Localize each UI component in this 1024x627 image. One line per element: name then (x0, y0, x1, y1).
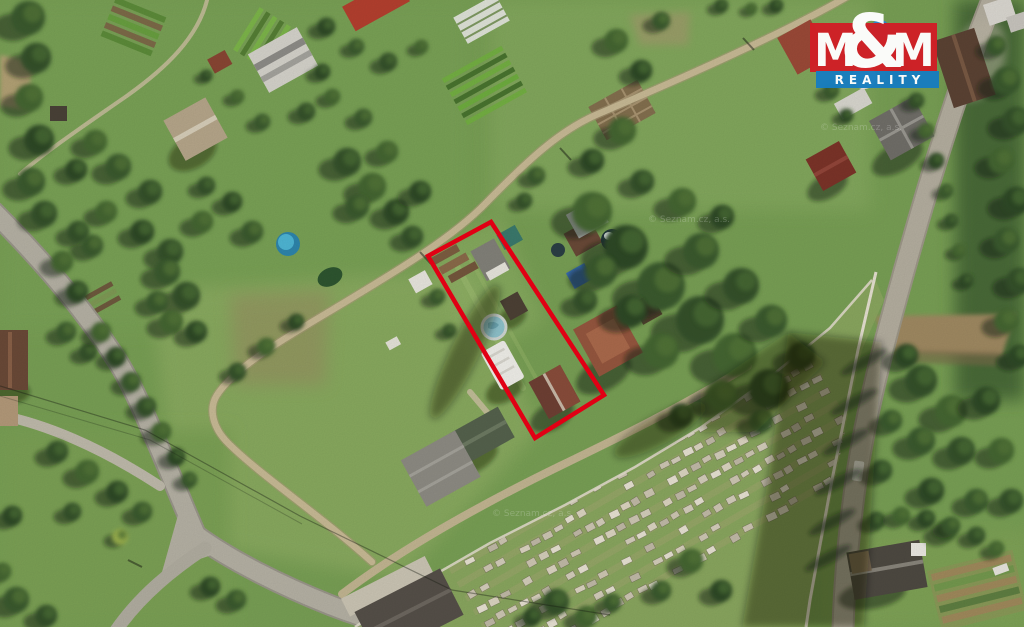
satellite-listing-image: © Seznam.cz, a.s. © Seznam.cz, a.s. © Se… (0, 0, 1024, 627)
logo-ampersand: & (840, 5, 905, 79)
aerial-photo: © Seznam.cz, a.s. © Seznam.cz, a.s. © Se… (0, 0, 1024, 627)
logo-reality-text: REALITY (830, 74, 926, 86)
logo-blue-bar: REALITY (816, 71, 939, 88)
photo-grain (0, 0, 1024, 627)
mm-reality-logo: M & M REALITY (806, 12, 946, 94)
